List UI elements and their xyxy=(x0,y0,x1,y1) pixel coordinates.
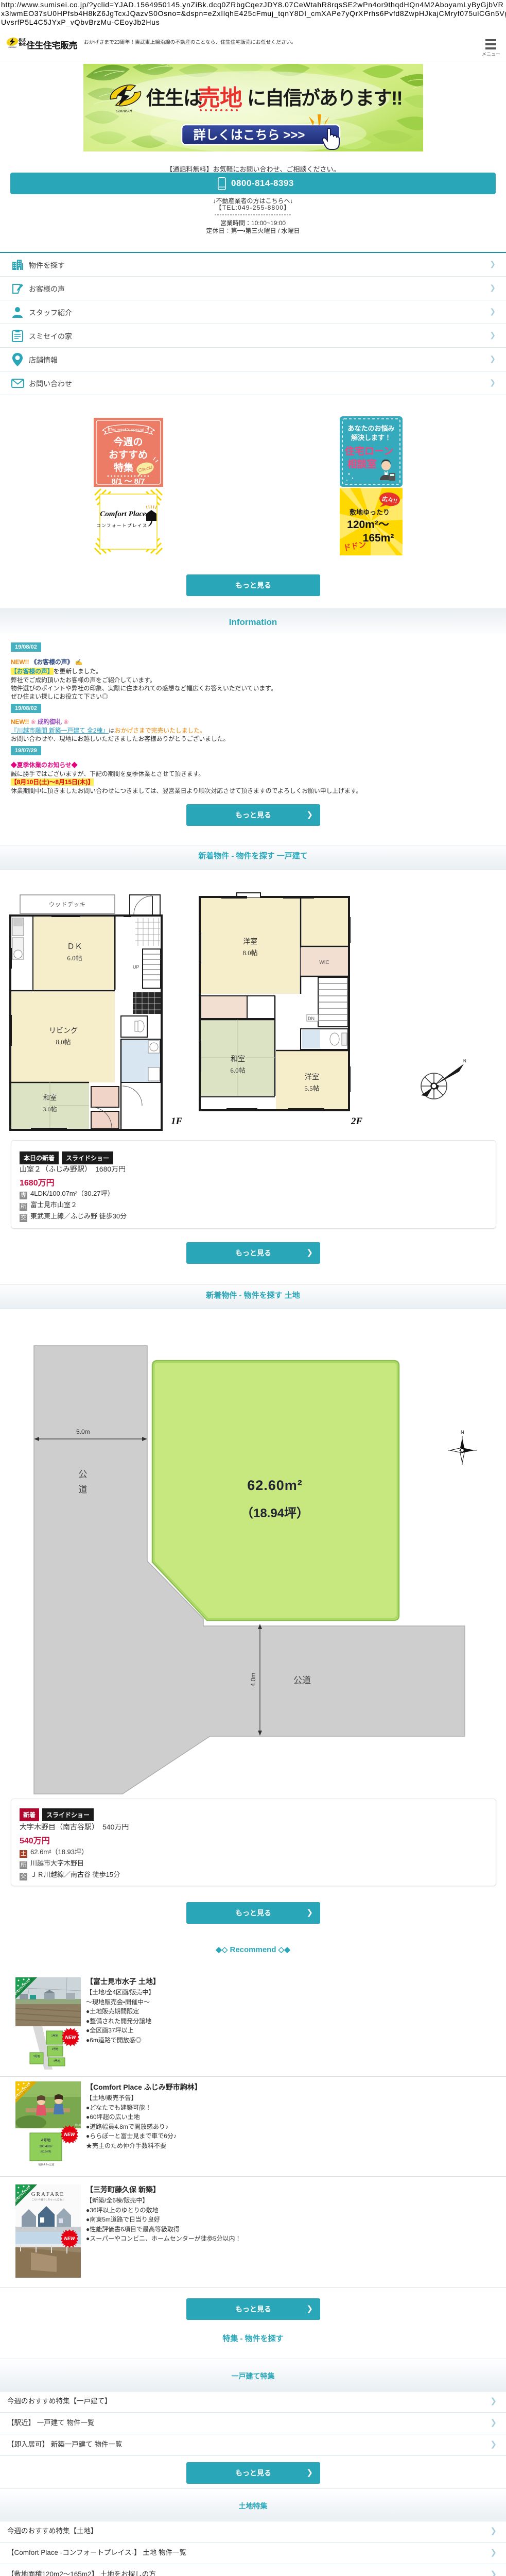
svg-text:こだわり暮らしをもっと自由に: こだわり暮らしをもっと自由に xyxy=(32,2198,64,2201)
svg-text:DN: DN xyxy=(308,1016,315,1021)
svg-text:敷地ゆったり: 敷地ゆったり xyxy=(350,509,390,516)
svg-text:3号地: 3号地 xyxy=(33,2055,40,2058)
svg-text:8.0帖: 8.0帖 xyxy=(242,949,257,957)
svg-text:和室: 和室 xyxy=(43,1094,57,1101)
svg-text:今週の: 今週の xyxy=(113,436,143,448)
svg-text:(60.64坪): (60.64坪) xyxy=(41,2150,51,2154)
svg-text:NEW: NEW xyxy=(65,2035,77,2040)
svg-text:UP: UP xyxy=(133,964,139,970)
svg-text:洋室: 洋室 xyxy=(305,1073,319,1081)
svg-text:6.0帖: 6.0帖 xyxy=(230,1066,245,1074)
svg-text:A号地: A号地 xyxy=(41,2138,51,2142)
svg-text:公: 公 xyxy=(79,1469,88,1479)
svg-text:住生は: 住生は xyxy=(146,88,202,109)
svg-text:3.0帖: 3.0帖 xyxy=(43,1105,57,1113)
svg-text:GRAFARE: GRAFARE xyxy=(31,2191,65,2197)
svg-text:2F: 2F xyxy=(351,1116,363,1127)
svg-text:あなたのお悩み: あなたのお悩み xyxy=(347,425,394,432)
svg-text:8/1 ～ 8/7: 8/1 ～ 8/7 xyxy=(111,477,145,486)
svg-text:ウッドデッキ: ウッドデッキ xyxy=(49,901,86,908)
svg-text:公道: 公道 xyxy=(293,1675,311,1685)
svg-text:1F: 1F xyxy=(171,1116,183,1127)
svg-text:5.0m: 5.0m xyxy=(76,1428,90,1435)
svg-text:ＤＫ: ＤＫ xyxy=(67,943,82,951)
svg-text:解決します！: 解決します！ xyxy=(351,434,391,442)
svg-text:sumisei: sumisei xyxy=(116,108,133,113)
svg-text:リビング: リビング xyxy=(49,1027,78,1035)
svg-text:6.0帖: 6.0帖 xyxy=(67,954,82,962)
svg-text:WIC: WIC xyxy=(319,960,329,965)
svg-text:4.0m: 4.0m xyxy=(250,1673,257,1687)
svg-text:4号地: 4号地 xyxy=(54,2059,60,2063)
svg-text:5.5帖: 5.5帖 xyxy=(304,1084,319,1092)
svg-text:（18.94坪）: （18.94坪） xyxy=(241,1506,309,1520)
svg-text:200.48m²: 200.48m² xyxy=(39,2145,52,2148)
svg-text:62.60m²: 62.60m² xyxy=(247,1478,303,1493)
svg-text:特集: 特集 xyxy=(114,462,134,473)
svg-text:image: image xyxy=(75,2124,81,2127)
svg-text:幅員4.8m公道: 幅員4.8m公道 xyxy=(38,2163,54,2166)
svg-text:This week's special !!: This week's special !! xyxy=(109,428,148,432)
svg-text:おすすめ: おすすめ xyxy=(109,449,148,461)
svg-text:洋室: 洋室 xyxy=(243,938,257,946)
svg-text:1号地: 1号地 xyxy=(51,2034,58,2038)
svg-text:和室: 和室 xyxy=(231,1055,245,1063)
svg-text:N: N xyxy=(461,1430,464,1435)
svg-text:N: N xyxy=(463,1059,466,1063)
svg-text:2号地: 2号地 xyxy=(52,2047,59,2051)
svg-text:住宅ローン: 住宅ローン xyxy=(344,445,393,457)
svg-text:道: 道 xyxy=(79,1485,88,1495)
svg-text:120m²～: 120m²～ xyxy=(347,519,389,531)
svg-text:NEW: NEW xyxy=(64,2236,76,2241)
svg-text:NEW: NEW xyxy=(64,2132,76,2137)
svg-text:8.0帖: 8.0帖 xyxy=(56,1038,71,1046)
svg-text:詳しくはこちら >>>: 詳しくはこちら >>> xyxy=(194,128,305,142)
svg-text:sumisei: sumisei xyxy=(8,46,16,48)
svg-text:に自信があります!!: に自信があります!! xyxy=(247,88,402,109)
svg-text:Comfort Place: Comfort Place xyxy=(100,510,146,518)
svg-text:コンフォートプレイス: コンフォートプレイス xyxy=(96,523,148,528)
svg-text:売地: 売地 xyxy=(198,86,242,111)
svg-text:相談室: 相談室 xyxy=(347,458,376,470)
svg-text:165m²: 165m² xyxy=(363,532,394,544)
